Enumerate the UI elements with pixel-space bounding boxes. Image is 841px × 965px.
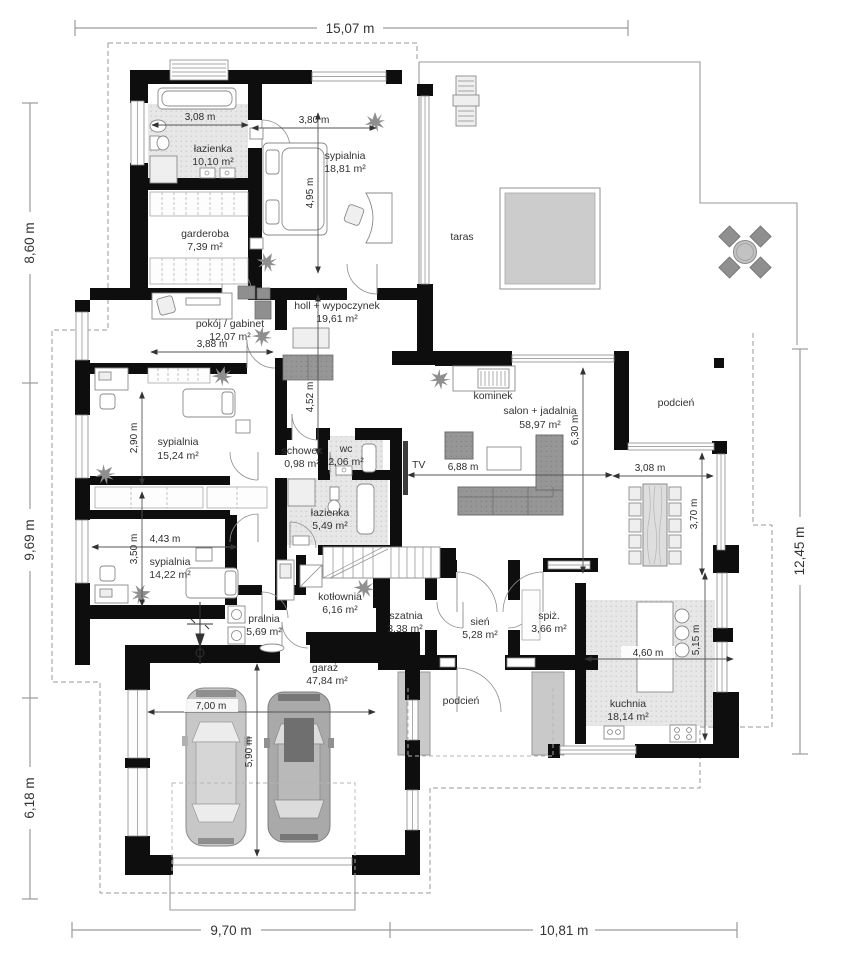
dim-sypialnia1-w: 3,80 m xyxy=(299,115,330,126)
staircase xyxy=(323,547,440,578)
room-area-lazienka2: 5,49 m² xyxy=(312,520,348,532)
room-label-taras: taras xyxy=(450,231,473,243)
dim-kuchnia-h: 5,15 m xyxy=(691,625,702,656)
garage-door xyxy=(173,858,352,865)
shower-icon xyxy=(150,156,177,183)
dim-bottom-right-label: 10,81 m xyxy=(540,923,589,938)
desk-study xyxy=(152,293,232,319)
dim-left-lower-label: 6,18 m xyxy=(22,777,37,818)
dim-holl-h: 4,52 m xyxy=(305,382,316,413)
dim-jadalnia-w: 3,08 m xyxy=(635,463,666,474)
tv-icon xyxy=(403,441,408,495)
room-area-szatnia: 3,38 m² xyxy=(387,623,423,635)
dim-garaz-w: 7,00 m xyxy=(196,701,227,712)
pendant-lights xyxy=(675,609,689,657)
desk-bedroom2 xyxy=(95,368,128,409)
bathtub-icon xyxy=(158,88,236,109)
dim-jadalnia-h: 3,70 m xyxy=(689,499,700,530)
room-area-lazienka1: 10,10 m² xyxy=(192,156,234,168)
room-area-sypialnia3: 14,22 m² xyxy=(149,569,191,581)
dim-left: 8,60 m 9,69 m 6,18 m xyxy=(22,103,38,899)
lounge-chair-icon xyxy=(453,76,479,126)
dining-set xyxy=(629,484,681,566)
plant-icon xyxy=(365,112,385,132)
dim-salon-w: 6,88 m xyxy=(448,462,479,473)
room-label-sien: sień xyxy=(470,616,489,628)
cabinet-dark xyxy=(255,301,271,319)
dim-kuchnia-w: 4,60 m xyxy=(633,648,664,659)
room-label-tv: TV xyxy=(412,459,425,471)
room-area-sien: 5,28 m² xyxy=(462,629,498,641)
room-label-spiz: spiż. xyxy=(538,610,560,622)
corridor-closets xyxy=(95,487,267,508)
desk-bedroom1 xyxy=(343,193,392,243)
room-area-wc: 2,06 m² xyxy=(328,456,364,468)
room-area-kotlownia: 6,16 m² xyxy=(322,604,358,616)
vent-grille-icon xyxy=(170,60,228,80)
freestanding-post xyxy=(714,358,724,368)
room-label-sypialnia1: sypialnia xyxy=(325,150,366,162)
room-label-salon: salon + jadalnia xyxy=(503,405,576,417)
cabinet-dark xyxy=(257,288,270,299)
hall-rug xyxy=(293,328,329,348)
dim-sypialnia3-w: 4,43 m xyxy=(150,534,181,545)
room-label-garderoba: garderoba xyxy=(181,228,229,240)
dim-left-middle-label: 9,69 m xyxy=(22,519,37,560)
room-area-garderoba: 7,39 m² xyxy=(187,241,223,253)
room-label-pokoj: pokój / gabinet xyxy=(196,318,264,330)
hall-sideboard xyxy=(283,355,333,380)
dim-sypialnia2-h: 2,90 m xyxy=(129,423,140,454)
room-label-wc: wc xyxy=(339,443,353,455)
dim-garaz-h: 5,90 m xyxy=(244,737,255,768)
armchair-icon xyxy=(445,432,473,459)
room-area-garaz: 47,84 m² xyxy=(306,675,348,687)
floor-plan-page: 15,07 m 8,60 m 9,69 m 6,18 m 12,45 m 9,7… xyxy=(0,0,841,965)
room-label-kotlownia: kotłownia xyxy=(318,591,362,603)
desk-bedroom3 xyxy=(95,566,128,603)
room-label-szatnia: szatnia xyxy=(389,610,422,622)
fireplace-grate-icon xyxy=(453,366,515,391)
car-suv-icon xyxy=(264,692,334,842)
room-label-lazienka1: łazienka xyxy=(194,143,233,155)
sink-icon xyxy=(150,120,166,132)
plant-icon xyxy=(426,365,454,393)
room-area-sypialnia2: 15,24 m² xyxy=(157,450,199,462)
room-label-kominek: kominek xyxy=(473,390,513,402)
dim-lazienka1-w: 3,08 m xyxy=(185,112,216,123)
cabinet-dark xyxy=(238,286,255,299)
dim-right-label: 12,45 m xyxy=(792,527,807,576)
room-area-pralnia: 5,69 m² xyxy=(246,626,282,638)
fireplace-body xyxy=(435,351,512,366)
closet-strip-bedroom2 xyxy=(148,368,210,383)
room-label-podcien-wejscie: podcień xyxy=(443,695,480,707)
room-label-sypialnia2: sypialnia xyxy=(158,436,199,448)
dim-right: 12,45 m xyxy=(792,349,808,754)
plant-icon xyxy=(129,582,153,606)
kitchen-sink-icon xyxy=(604,726,624,739)
dim-salon-h: 6,30 m xyxy=(570,415,581,446)
room-label-holl: holl + wypoczynek xyxy=(294,300,380,312)
floor-plan-canvas: 15,07 m 8,60 m 9,69 m 6,18 m 12,45 m 9,7… xyxy=(0,0,841,965)
garden-table-set-icon xyxy=(719,226,771,278)
room-label-lazienka2: łazienka xyxy=(311,507,350,519)
dim-bottom: 9,70 m 10,81 m xyxy=(72,921,737,938)
dim-top-label: 15,07 m xyxy=(326,21,375,36)
room-label-podcien-gorny: podcień xyxy=(658,397,695,409)
dim-sypialnia3-h: 3,50 m xyxy=(129,534,140,565)
porch-column-right xyxy=(532,672,564,755)
room-area-schowek: 0,98 m² xyxy=(284,458,320,470)
room-area-sypialnia1: 18,81 m² xyxy=(324,163,366,175)
terrace xyxy=(419,62,797,345)
cooktop-icon xyxy=(670,725,696,742)
room-label-kuchnia: kuchnia xyxy=(610,698,646,710)
room-label-pralnia: pralnia xyxy=(248,613,280,625)
room-area-salon: 58,97 m² xyxy=(519,419,561,431)
room-label-garaz: garaż xyxy=(312,662,338,674)
dim-bottom-left-label: 9,70 m xyxy=(210,923,251,938)
room-area-spiz: 3,66 m² xyxy=(531,623,567,635)
dim-left-upper-label: 8,60 m xyxy=(22,222,37,263)
room-label-sypialnia3: sypialnia xyxy=(150,556,191,568)
dim-sypialnia1-h: 4,95 m xyxy=(305,178,316,209)
porch-pillar xyxy=(614,351,629,450)
coffee-table xyxy=(487,447,521,470)
room-label-schowek: schowek xyxy=(282,445,324,457)
dim-top: 15,07 m xyxy=(75,19,628,36)
room-area-pokoj: 12,07 m² xyxy=(209,331,251,343)
bed-single-icon xyxy=(183,389,250,433)
room-area-kuchnia: 18,14 m² xyxy=(607,711,649,723)
room-area-holl: 19,61 m² xyxy=(316,313,358,325)
toilet-icon xyxy=(150,136,169,150)
dining-table xyxy=(643,484,667,566)
